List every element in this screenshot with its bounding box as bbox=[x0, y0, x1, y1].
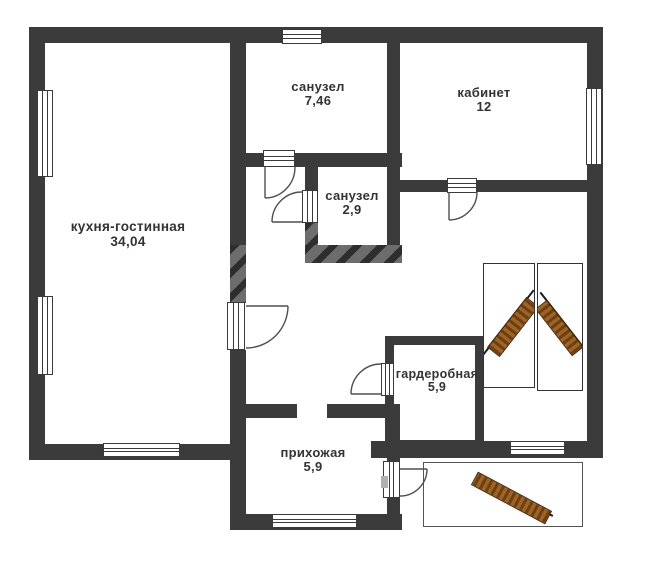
room-area: 5,9 bbox=[280, 460, 345, 474]
door-bathroom-small bbox=[272, 192, 302, 222]
room-name: санузел bbox=[325, 189, 378, 203]
room-name: санузел bbox=[291, 80, 344, 94]
room-area: 7,46 bbox=[291, 94, 344, 108]
room-name: кабинет bbox=[457, 86, 510, 100]
room-label-hallway: прихожая 5,9 bbox=[280, 446, 345, 474]
room-label-office: кабинет 12 bbox=[457, 86, 510, 114]
room-label-bathroom-large: санузел 7,46 bbox=[291, 80, 344, 108]
room-area: 12 bbox=[457, 100, 510, 114]
door-entry bbox=[400, 469, 427, 496]
room-area: 2,9 bbox=[325, 203, 378, 217]
room-label-wardrobe: гардеробная 5,9 bbox=[396, 368, 478, 394]
room-name: прихожая bbox=[280, 446, 345, 460]
room-area: 34,04 bbox=[71, 234, 186, 249]
room-name: кухня-гостинная bbox=[71, 219, 186, 234]
room-area: 5,9 bbox=[396, 381, 478, 394]
door-office bbox=[449, 192, 477, 220]
door-kitchen bbox=[246, 306, 288, 348]
door-wardrobe bbox=[351, 364, 381, 394]
room-label-kitchen-living: кухня-гостинная 34,04 bbox=[71, 219, 186, 249]
door-bathroom-large bbox=[265, 167, 295, 198]
floor-plan: кухня-гостинная 34,04 санузел 7,46 кабин… bbox=[0, 0, 652, 565]
room-label-bathroom-small: санузел 2,9 bbox=[325, 189, 378, 217]
